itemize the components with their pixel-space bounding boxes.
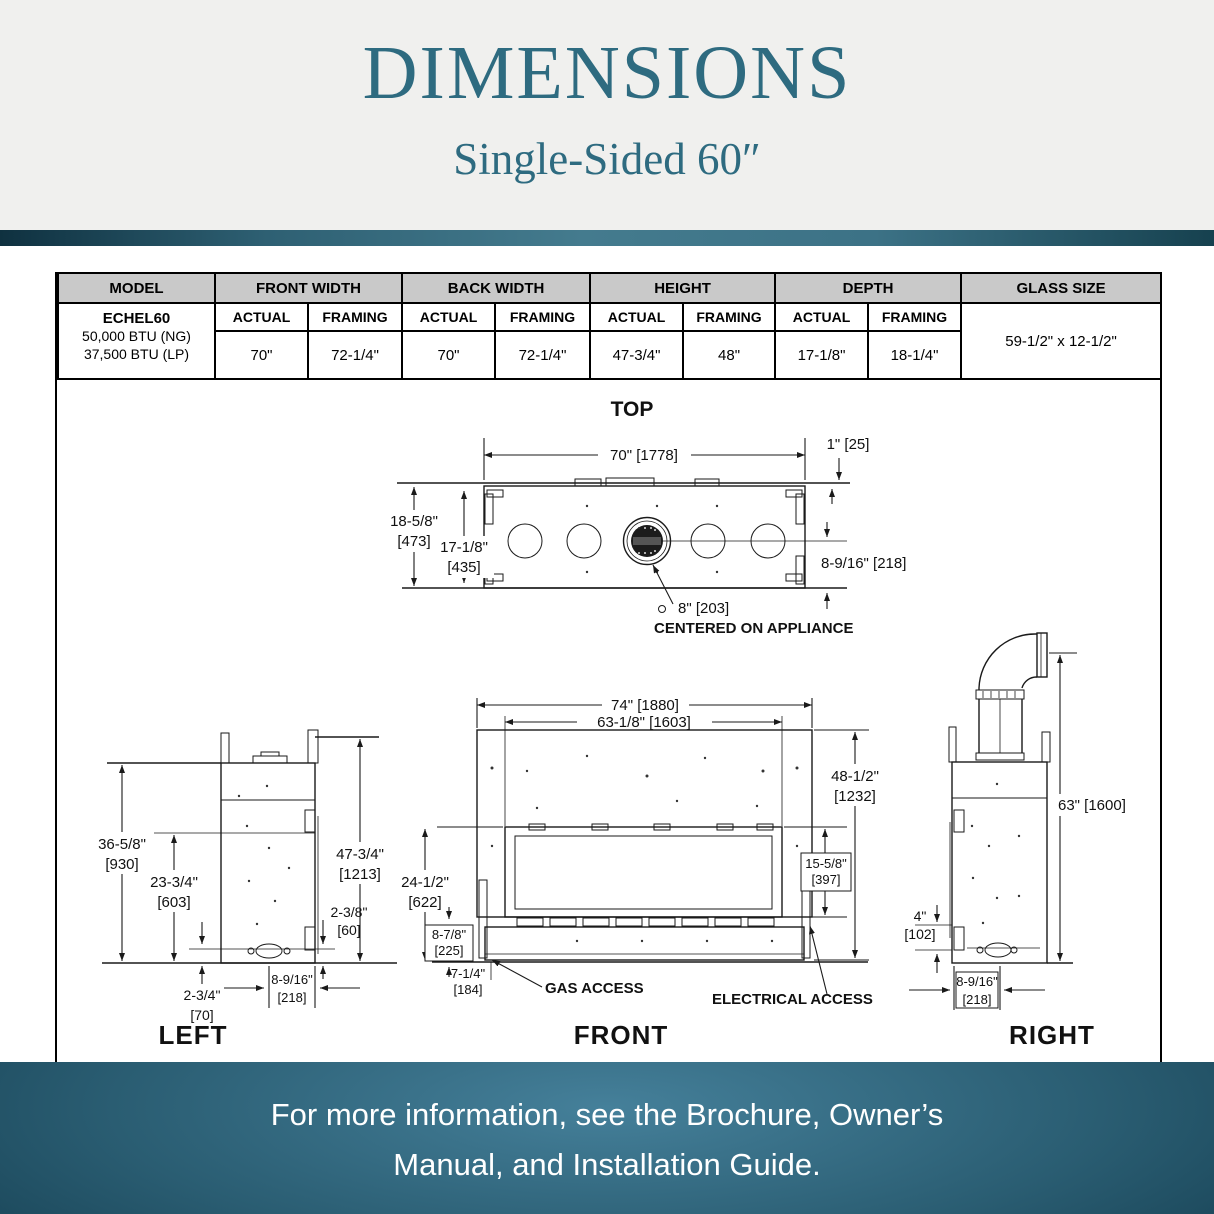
- top-width-dim: 70" [1778]: [610, 447, 678, 464]
- glass-size-value: 59-1/2" x 12-1/2": [961, 303, 1161, 379]
- footer-text-line1: For more information, see the Brochure, …: [0, 1090, 1214, 1140]
- left-h1-in: 36-5/8": [98, 836, 146, 853]
- value-height-actual: 47-3/4": [590, 331, 683, 379]
- header-section: DIMENSIONS Single-Sided 60″: [0, 0, 1214, 230]
- col-header-model: MODEL: [58, 273, 215, 303]
- right-view-outline: [952, 762, 1047, 963]
- right-d1-in: 8-9/16": [956, 974, 998, 989]
- front-view: 74" [1880] 63-1/8" [1603] 48-1/2" [1232]…: [394, 697, 885, 1050]
- front-h2-mm: [622]: [408, 894, 441, 911]
- accent-divider-band: [0, 230, 1214, 246]
- spec-table: MODEL FRONT WIDTH BACK WIDTH HEIGHT DEPT…: [57, 272, 1162, 380]
- front-h2-in: 24-1/2": [401, 874, 449, 891]
- right-view-title: RIGHT: [1009, 1020, 1095, 1050]
- subheader-actual-back: ACTUAL: [402, 303, 495, 331]
- glass-opening: [505, 827, 782, 917]
- dimension-diagram: TOP: [57, 376, 1160, 1062]
- front-h3-in: 15-5/8": [805, 856, 847, 871]
- model-cell: ECHEL60 50,000 BTU (NG) 37,500 BTU (LP): [58, 303, 215, 379]
- subheader-framing-depth: FRAMING: [868, 303, 961, 331]
- subheader-actual-height: ACTUAL: [590, 303, 683, 331]
- top-depth-outer-in: 18-5/8": [390, 513, 438, 530]
- subheader-framing-front: FRAMING: [308, 303, 402, 331]
- front-w1-dim: 74" [1880]: [611, 697, 679, 714]
- value-front-actual: 70": [215, 331, 308, 379]
- value-height-framing: 48": [683, 331, 775, 379]
- gas-access-label: GAS ACCESS: [545, 980, 644, 997]
- electrical-access-label: ELECTRICAL ACCESS: [712, 991, 873, 1008]
- col-header-depth: DEPTH: [775, 273, 961, 303]
- right-h1-dim: 63" [1600]: [1058, 797, 1126, 814]
- col-header-front-width: FRONT WIDTH: [215, 273, 402, 303]
- table-subheader-row: ECHEL60 50,000 BTU (NG) 37,500 BTU (LP) …: [58, 303, 1161, 331]
- content-box: MODEL FRONT WIDTH BACK WIDTH HEIGHT DEPT…: [55, 272, 1162, 1062]
- front-h5-in: 7-1/4": [451, 966, 486, 981]
- top-depth-inner-in: 17-1/8": [440, 539, 488, 556]
- value-depth-actual: 17-1/8": [775, 331, 868, 379]
- value-depth-framing: 18-1/4": [868, 331, 961, 379]
- top-flue-offset-dim: 8-9/16" [218]: [821, 555, 906, 572]
- table-header-row: MODEL FRONT WIDTH BACK WIDTH HEIGHT DEPT…: [58, 273, 1161, 303]
- left-d3-mm: [218]: [278, 990, 307, 1005]
- footer-text-line2: Manual, and Installation Guide.: [0, 1140, 1214, 1190]
- left-view: 36-5/8" [930] 23-3/4" [603] 47-3/4" [121…: [92, 730, 397, 1050]
- model-btu-ng: 50,000 BTU (NG): [59, 327, 214, 345]
- left-d3-in: 8-9/16": [271, 972, 313, 987]
- subheader-framing-back: FRAMING: [495, 303, 590, 331]
- top-depth-outer-mm: [473]: [397, 533, 430, 550]
- left-h1-mm: [930]: [105, 856, 138, 873]
- front-h4-mm: [225]: [435, 943, 464, 958]
- front-h4-in: 8-7/8": [432, 927, 467, 942]
- front-h1-mm: [1232]: [834, 788, 876, 805]
- subheader-actual-front: ACTUAL: [215, 303, 308, 331]
- subheader-framing-height: FRAMING: [683, 303, 775, 331]
- left-d1-in: 2-3/8": [331, 904, 368, 920]
- value-front-framing: 72-1/4": [308, 331, 402, 379]
- right-view: 63" [1600] 4" [102] 8-9/16" [218] RIGHT: [904, 633, 1132, 1050]
- col-header-glass-size: GLASS SIZE: [961, 273, 1161, 303]
- flue-centered-note: CENTERED ON APPLIANCE: [654, 620, 853, 637]
- value-back-framing: 72-1/4": [495, 331, 590, 379]
- right-d1-mm: [218]: [963, 992, 992, 1007]
- top-depth-inner-mm: [435]: [447, 559, 480, 576]
- page-title: DIMENSIONS: [0, 30, 1214, 117]
- col-header-height: HEIGHT: [590, 273, 775, 303]
- left-h3-in: 47-3/4": [336, 846, 384, 863]
- left-h3-mm: [1213]: [339, 866, 381, 883]
- front-view-title: FRONT: [574, 1020, 669, 1050]
- value-back-actual: 70": [402, 331, 495, 379]
- vent-elbow: [976, 633, 1047, 760]
- page-subtitle: Single-Sided 60″: [0, 133, 1214, 185]
- col-header-back-width: BACK WIDTH: [402, 273, 590, 303]
- front-h1-in: 48-1/2": [831, 768, 879, 785]
- model-name: ECHEL60: [59, 304, 214, 327]
- model-btu-lp: 37,500 BTU (LP): [59, 345, 214, 363]
- right-h2-mm: [102]: [904, 926, 935, 942]
- front-h5-mm: [184]: [454, 982, 483, 997]
- right-h2-in: 4": [914, 908, 927, 924]
- front-h3-mm: [397]: [812, 872, 841, 887]
- top-view-title: TOP: [611, 398, 654, 421]
- flue-diameter-dim: 8" [203]: [678, 600, 729, 617]
- left-d1-mm: [60]: [337, 922, 360, 938]
- left-view-outline: [221, 763, 315, 963]
- front-w2-dim: 63-1/8" [1603]: [597, 714, 691, 731]
- dimensions-page: DIMENSIONS Single-Sided 60″ MODEL FRONT …: [0, 0, 1214, 1214]
- footer-band: For more information, see the Brochure, …: [0, 1062, 1214, 1214]
- left-h2-mm: [603]: [157, 894, 190, 911]
- left-view-title: LEFT: [159, 1020, 228, 1050]
- top-flange-dim: 1" [25]: [827, 436, 870, 453]
- subheader-actual-depth: ACTUAL: [775, 303, 868, 331]
- left-h2-in: 23-3/4": [150, 874, 198, 891]
- base-section: [485, 927, 804, 960]
- left-d2-in: 2-3/4": [184, 987, 221, 1003]
- top-view: TOP: [382, 398, 906, 637]
